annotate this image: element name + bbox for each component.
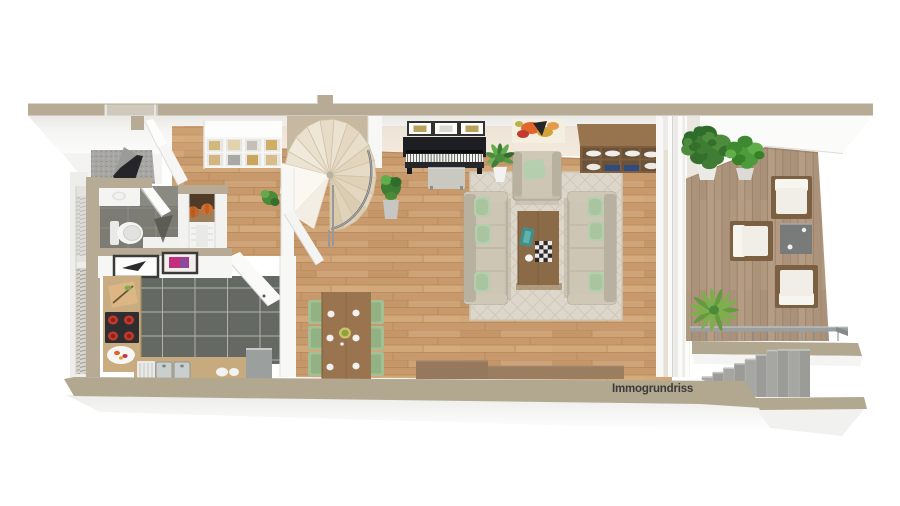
- svg-text:Immogrundriss: Immogrundriss: [612, 383, 693, 395]
